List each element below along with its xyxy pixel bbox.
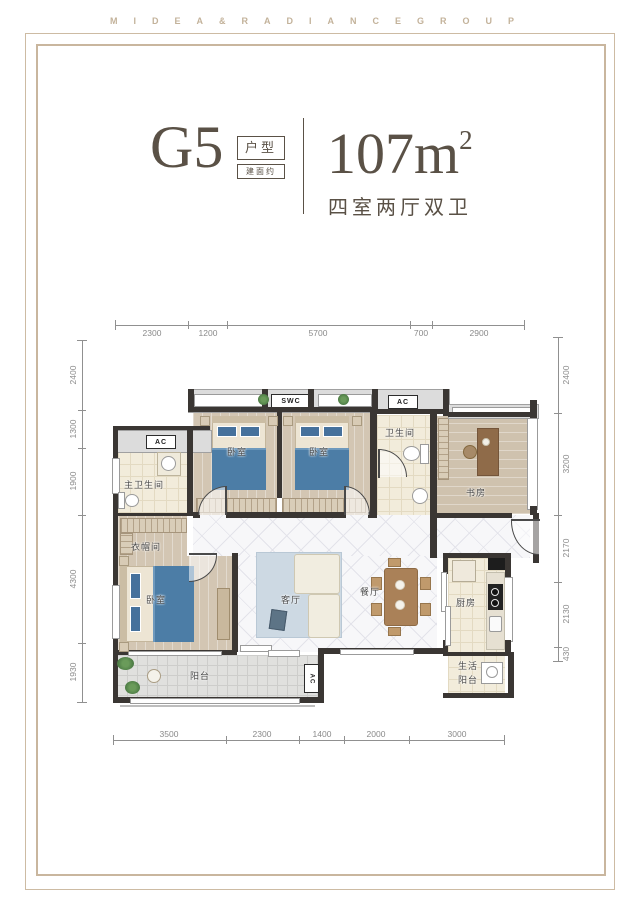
dim-line-left bbox=[82, 340, 83, 702]
dim-tick bbox=[77, 702, 87, 703]
dim-line-right bbox=[558, 337, 559, 661]
desk-chair bbox=[463, 445, 477, 459]
nightstand bbox=[268, 416, 278, 426]
label-bedroom2: 卧室 bbox=[309, 445, 329, 458]
sink bbox=[412, 488, 428, 504]
balcony-door-window bbox=[128, 651, 222, 656]
wall bbox=[448, 412, 537, 417]
wall bbox=[226, 512, 346, 518]
floorplan-page: MIDEA&RADIANCEGROUP G5 户型 建面约 107m2 四室两厅… bbox=[0, 0, 640, 919]
nightstand bbox=[119, 642, 129, 652]
chair bbox=[388, 627, 401, 636]
label-service-balcony-1: 生活 bbox=[458, 659, 478, 672]
ac-badge-master: AC bbox=[146, 435, 176, 449]
dim-label: 3500 bbox=[144, 729, 194, 739]
wall bbox=[113, 650, 118, 703]
dim-label: 2900 bbox=[454, 328, 504, 338]
label-living: 客厅 bbox=[281, 593, 301, 606]
plant bbox=[117, 657, 134, 670]
chair bbox=[371, 603, 382, 616]
toilet-tank bbox=[118, 492, 125, 509]
fridge bbox=[452, 560, 476, 582]
tag-huxing: 户型 bbox=[237, 136, 285, 160]
bay-window bbox=[194, 394, 264, 407]
plate bbox=[395, 600, 405, 610]
dim-tick bbox=[113, 735, 114, 745]
desk-lamp bbox=[482, 438, 490, 446]
dim-label: 1200 bbox=[183, 328, 233, 338]
label-bathroom: 卫生间 bbox=[385, 426, 415, 439]
door-leaf bbox=[189, 553, 217, 555]
dim-label: 1300 bbox=[68, 409, 78, 449]
study-bookshelf bbox=[438, 418, 449, 480]
sofa bbox=[294, 554, 340, 594]
pillow bbox=[130, 573, 141, 599]
pillow bbox=[323, 426, 343, 437]
dim-label: 2400 bbox=[68, 355, 78, 395]
dining-table bbox=[384, 568, 418, 626]
wall bbox=[443, 652, 510, 656]
dim-tick bbox=[78, 515, 86, 516]
dim-label: 4300 bbox=[68, 559, 78, 599]
tag-jianmianyue: 建面约 bbox=[237, 164, 285, 179]
wall bbox=[370, 410, 377, 515]
window bbox=[112, 585, 120, 639]
wall bbox=[113, 426, 210, 430]
sink bbox=[161, 456, 176, 471]
chair bbox=[420, 577, 431, 590]
door-leaf bbox=[225, 486, 227, 515]
wall bbox=[430, 412, 437, 558]
label-dining: 餐厅 bbox=[360, 585, 380, 598]
pillow bbox=[300, 426, 320, 437]
desk bbox=[477, 428, 499, 476]
dim-tick bbox=[409, 736, 410, 744]
dim-label: 3200 bbox=[561, 444, 571, 484]
wall bbox=[118, 513, 187, 516]
nightstand bbox=[352, 416, 362, 426]
wall bbox=[187, 428, 193, 516]
wall bbox=[505, 640, 511, 652]
balcony-railing bbox=[130, 698, 300, 704]
door-leaf bbox=[511, 519, 540, 521]
dim-line-bottom bbox=[113, 740, 505, 741]
wall-pillar bbox=[188, 389, 194, 409]
kitchen-window bbox=[504, 577, 513, 642]
swc-badge: SWC bbox=[271, 394, 311, 408]
area-superscript: 2 bbox=[459, 125, 473, 155]
toilet-bowl bbox=[403, 446, 420, 461]
chair bbox=[420, 603, 431, 616]
dim-label: 2300 bbox=[237, 729, 287, 739]
toilet-bowl bbox=[125, 494, 139, 507]
pillow bbox=[217, 426, 237, 437]
wall bbox=[508, 652, 514, 698]
wall-pillar bbox=[372, 389, 378, 411]
wall-pillar bbox=[308, 389, 314, 409]
area-value: 107m bbox=[327, 121, 459, 186]
label-service-balcony-2: 阳台 bbox=[458, 673, 478, 686]
burner bbox=[491, 599, 499, 607]
dim-label: 2130 bbox=[561, 594, 571, 634]
chair bbox=[388, 558, 401, 567]
ac-unit-label: AC bbox=[308, 673, 314, 684]
nightstand bbox=[200, 416, 210, 426]
plant bbox=[125, 681, 140, 694]
study-window bbox=[527, 418, 538, 510]
ac-unit-balcony: AC bbox=[304, 664, 319, 693]
dim-label: 430 bbox=[561, 634, 571, 674]
window bbox=[340, 649, 414, 655]
dim-tick bbox=[554, 413, 562, 414]
balcony-table bbox=[147, 669, 161, 683]
dim-tick bbox=[78, 643, 86, 644]
door-leaf bbox=[378, 449, 380, 478]
label-master-bedroom: 卧室 bbox=[146, 593, 166, 606]
bed-headboard bbox=[212, 416, 266, 423]
range-hood bbox=[488, 558, 505, 570]
label-balcony: 阳台 bbox=[190, 669, 210, 682]
title-divider bbox=[303, 118, 304, 214]
dim-tick bbox=[78, 410, 86, 411]
washer-drum bbox=[486, 666, 498, 678]
burner bbox=[491, 588, 499, 596]
dim-tick bbox=[554, 515, 562, 516]
dim-label: 700 bbox=[396, 328, 446, 338]
balcony-sliding-door bbox=[268, 650, 300, 657]
cloakroom-wardrobe-top bbox=[120, 518, 187, 533]
door-leaf bbox=[344, 486, 346, 515]
wall bbox=[530, 400, 537, 418]
nightstand bbox=[283, 416, 293, 426]
plan-code: G5 bbox=[150, 116, 223, 178]
brand-letterhead: MIDEA&RADIANCEGROUP bbox=[0, 16, 640, 26]
dim-tick bbox=[524, 320, 525, 330]
dim-tick bbox=[554, 582, 562, 583]
pillow bbox=[130, 606, 141, 632]
label-study: 书房 bbox=[466, 486, 486, 499]
label-cloakroom: 衣帽间 bbox=[131, 540, 161, 553]
corridor-floor bbox=[193, 515, 437, 556]
dim-tick bbox=[553, 337, 563, 338]
dim-tick bbox=[115, 320, 116, 330]
sofa-chaise bbox=[308, 594, 340, 638]
bed-headboard bbox=[120, 566, 127, 642]
dim-tick bbox=[77, 340, 87, 341]
label-master-bath: 主卫生间 bbox=[124, 478, 164, 491]
dim-label: 1930 bbox=[68, 652, 78, 692]
dim-label: 2000 bbox=[351, 729, 401, 739]
wall bbox=[530, 506, 537, 515]
label-kitchen: 厨房 bbox=[456, 596, 476, 609]
plant bbox=[338, 394, 349, 405]
dim-line-top bbox=[115, 325, 525, 326]
label-bedroom1: 卧室 bbox=[227, 445, 247, 458]
dim-tick bbox=[78, 448, 86, 449]
nightstand bbox=[119, 556, 129, 566]
kitchen-sink bbox=[489, 616, 502, 632]
wall bbox=[505, 553, 511, 577]
pillow bbox=[240, 426, 260, 437]
coffee-table bbox=[269, 609, 288, 631]
dim-label: 2170 bbox=[561, 528, 571, 568]
ac-badge-top: AC bbox=[388, 395, 418, 409]
window bbox=[112, 458, 120, 494]
kitchen-sliding-door bbox=[445, 606, 451, 646]
dim-tick bbox=[504, 735, 505, 745]
dim-label: 2400 bbox=[561, 355, 571, 395]
dim-tick bbox=[226, 736, 227, 744]
dresser bbox=[217, 588, 230, 640]
wall bbox=[443, 693, 514, 698]
wall-pillar bbox=[443, 389, 449, 416]
wall bbox=[437, 513, 512, 518]
dim-label: 3000 bbox=[432, 729, 482, 739]
plant bbox=[258, 394, 269, 405]
toilet-tank bbox=[420, 444, 429, 464]
balcony-slab-edge bbox=[120, 705, 315, 707]
bed-headboard bbox=[295, 416, 349, 423]
plate bbox=[395, 580, 405, 590]
wall bbox=[232, 553, 238, 652]
layout-description: 四室两厅双卫 bbox=[328, 191, 472, 220]
dim-label: 2300 bbox=[127, 328, 177, 338]
dim-label: 1900 bbox=[68, 461, 78, 501]
dim-label: 5700 bbox=[293, 328, 343, 338]
dim-label: 1400 bbox=[297, 729, 347, 739]
